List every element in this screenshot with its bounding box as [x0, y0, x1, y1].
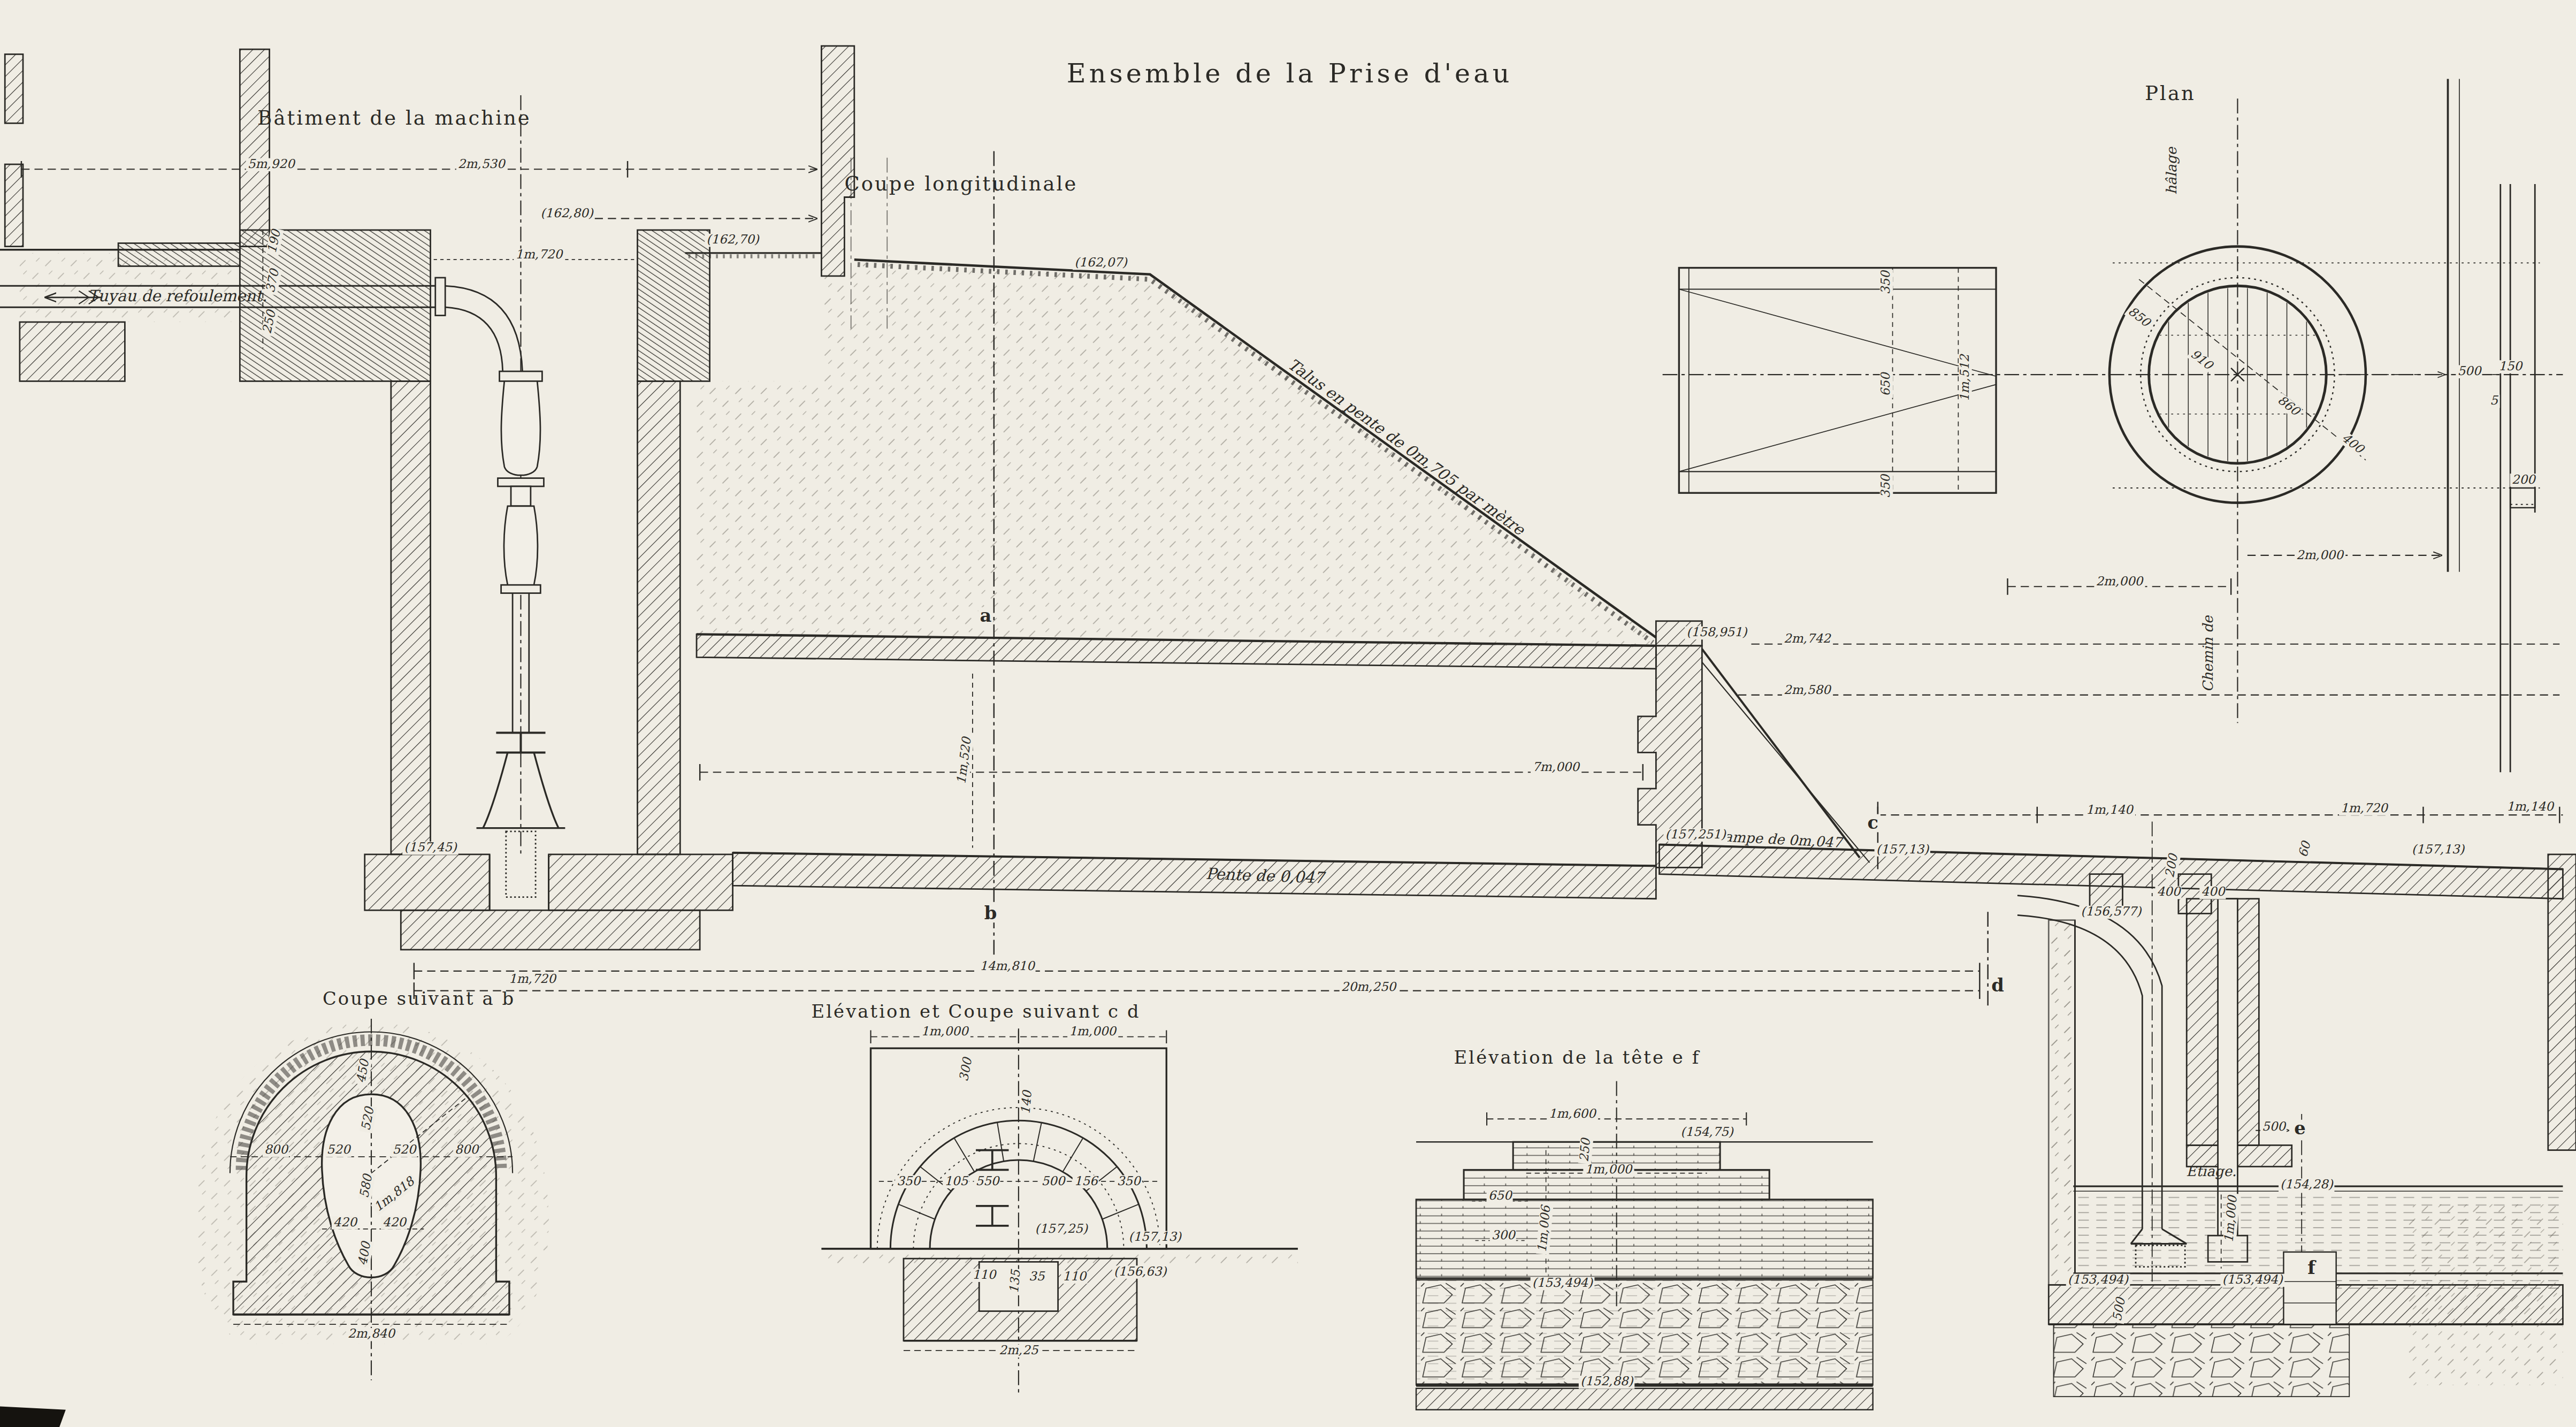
- marker-e: e: [2292, 1120, 2307, 1138]
- dim-2000-left: 2m,000: [2094, 576, 2144, 588]
- level-156-63: (156,63): [1112, 1265, 1168, 1278]
- dim-250-ef: 250: [1578, 1136, 1593, 1164]
- dim-400-shaft-left: 400: [2155, 886, 2182, 898]
- level-157-13-cd: (157,13): [1127, 1231, 1183, 1243]
- dim-1512: 1m,512: [1959, 353, 1971, 403]
- dim-2530: 2m,530: [456, 158, 507, 171]
- dim-135: 135: [1008, 1268, 1022, 1295]
- level-157-13-right: (157,13): [2410, 843, 2466, 856]
- level-153-494-left: (153,494): [2066, 1274, 2130, 1286]
- dim-1720-room: 1m,720: [514, 248, 564, 261]
- title-plan: Plan: [2145, 84, 2196, 104]
- dim-156: 156: [1073, 1175, 1099, 1187]
- title-longitudinal-section: Coupe longitudinale: [844, 174, 1077, 194]
- marker-c: c: [1866, 814, 1880, 833]
- dim-1720-ab: 1m,720: [507, 973, 557, 986]
- level-157-25: (157,25): [1033, 1223, 1089, 1235]
- dim-350-cd-right: 350: [1115, 1175, 1142, 1187]
- dim-7000: 7m,000: [1531, 761, 1581, 774]
- marker-a: a: [978, 607, 993, 625]
- dim-520-ab-right: 520: [391, 1144, 417, 1156]
- level-162-07: (162,07): [1073, 257, 1129, 269]
- dim-150: 150: [2497, 360, 2524, 372]
- level-158-951: (158,951): [1685, 627, 1748, 639]
- marker-d: d: [1990, 977, 2006, 995]
- drawing-sheet: Ensemble de la Prise d'eau Bâtiment de l…: [0, 0, 2576, 1427]
- marker-b: b: [983, 904, 999, 922]
- level-153-494-ef: (153,494): [1531, 1277, 1594, 1289]
- dim-1140-right: 1m,140: [2505, 800, 2555, 813]
- dim-400-shaft-right: 400: [2199, 886, 2226, 898]
- dim-1720-right: 1m,720: [2339, 802, 2389, 814]
- dim-2580: 2m,580: [1782, 684, 1832, 696]
- dim-140: 140: [1020, 1089, 1034, 1117]
- level-162-80: (162,80): [539, 208, 595, 220]
- note-tuyau-refoulement: Tuyau de refoulement.: [88, 288, 267, 303]
- level-156-577: (156,577): [2079, 906, 2143, 918]
- main-title: Ensemble de la Prise d'eau: [1067, 61, 1513, 87]
- level-162-70: (162,70): [705, 234, 761, 246]
- dim-1000-cd-left: 1m,000: [920, 1026, 970, 1038]
- elevation-ef-detail: [1416, 1081, 1873, 1410]
- note-chemin-de: Chemin de: [2201, 616, 2215, 692]
- dim-200-plan: 200: [2510, 474, 2537, 486]
- title-machine-building: Bâtiment de la machine: [257, 109, 531, 128]
- dim-1600: 1m,600: [1547, 1108, 1597, 1120]
- dim-35: 35: [1027, 1270, 1046, 1283]
- dim-650-ef: 650: [1487, 1190, 1514, 1202]
- dim-5920: 5m,920: [246, 158, 296, 171]
- title-coupe-cd: Elévation et Coupe suivant c d: [812, 1003, 1141, 1021]
- dim-110-left: 110: [970, 1269, 997, 1281]
- coupe-cd-detail: [821, 1028, 1298, 1397]
- dim-420-left: 420: [332, 1216, 358, 1228]
- note-halage: hâlage: [2165, 147, 2179, 194]
- dim-1000-ef: 1m,000: [1583, 1164, 1633, 1176]
- dim-350-cd-left: 350: [895, 1175, 922, 1187]
- dim-300-ef: 300: [1490, 1230, 1517, 1242]
- dim-1140-left: 1m,140: [2084, 804, 2135, 816]
- dim-1000-cd-right: 1m,000: [1067, 1026, 1118, 1038]
- level-153-494-right: (153,494): [2220, 1274, 2284, 1286]
- level-154-28: (154,28): [2279, 1179, 2335, 1191]
- plan-view: [1663, 79, 2563, 772]
- dim-420-right: 420: [381, 1216, 408, 1228]
- dim-650-plan: 650: [1880, 371, 1892, 398]
- dim-500-e: 500: [2260, 1121, 2287, 1133]
- level-157-251: (157,251): [1663, 828, 1727, 841]
- dim-520-ab-left: 520: [325, 1144, 352, 1156]
- dim-350-plan-bottom: 350: [1880, 473, 1892, 500]
- dim-2742: 2m,742: [1782, 633, 1832, 645]
- dim-14810: 14m,810: [978, 960, 1036, 972]
- dim-500-plan: 500: [2456, 365, 2482, 377]
- dim-105: 105: [943, 1175, 969, 1187]
- level-157-45: (157,45): [402, 842, 458, 854]
- dim-2840: 2m,840: [346, 1328, 396, 1340]
- dim-800-right: 800: [453, 1144, 480, 1156]
- dim-350-plan-top: 350: [1880, 269, 1892, 296]
- note-etiage: Etiage.: [2186, 1164, 2236, 1178]
- level-157-13-c: (157,13): [1875, 843, 1931, 856]
- dim-5: 5: [2488, 395, 2499, 407]
- note-pente: Pente de 0,047: [1205, 866, 1324, 886]
- dim-225: 2m,25: [997, 1345, 1039, 1357]
- title-coupe-ab: Coupe suivant a b: [323, 990, 515, 1008]
- marker-f: f: [2306, 1260, 2317, 1278]
- dim-20250: 20m,250: [1340, 981, 1398, 994]
- dim-800-left: 800: [263, 1144, 289, 1156]
- dim-550: 550: [974, 1175, 1000, 1187]
- dim-110-right: 110: [1061, 1270, 1088, 1283]
- title-elevation-ef: Elévation de la tête e f: [1454, 1049, 1701, 1067]
- drawing-canvas: [0, 0, 2576, 1427]
- level-152-88: (152,88): [1579, 1376, 1635, 1388]
- dim-2000-right: 2m,000: [2295, 549, 2345, 561]
- dim-500-cd: 500: [1039, 1175, 1066, 1187]
- plate-corner-mark: [0, 1407, 66, 1427]
- level-154-75: (154,75): [1679, 1126, 1735, 1138]
